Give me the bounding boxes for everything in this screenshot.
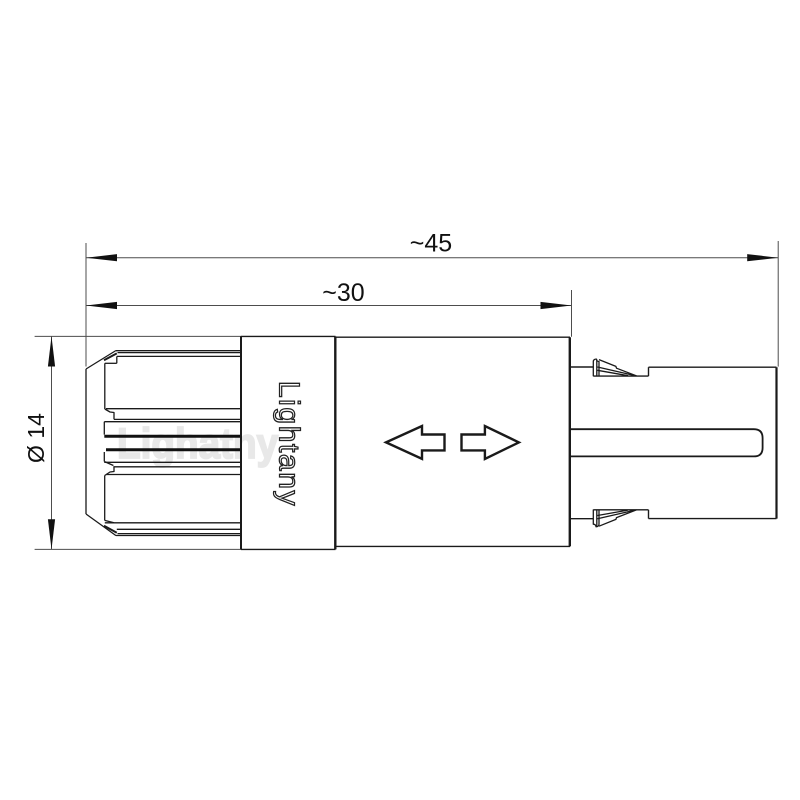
svg-text:~30: ~30 [322,279,364,307]
svg-text:Lighatny: Lighatny [117,419,278,467]
svg-text:Ø 14: Ø 14 [23,413,49,463]
svg-text:Lightany: Lightany [273,381,304,507]
svg-text:~45: ~45 [410,230,452,258]
